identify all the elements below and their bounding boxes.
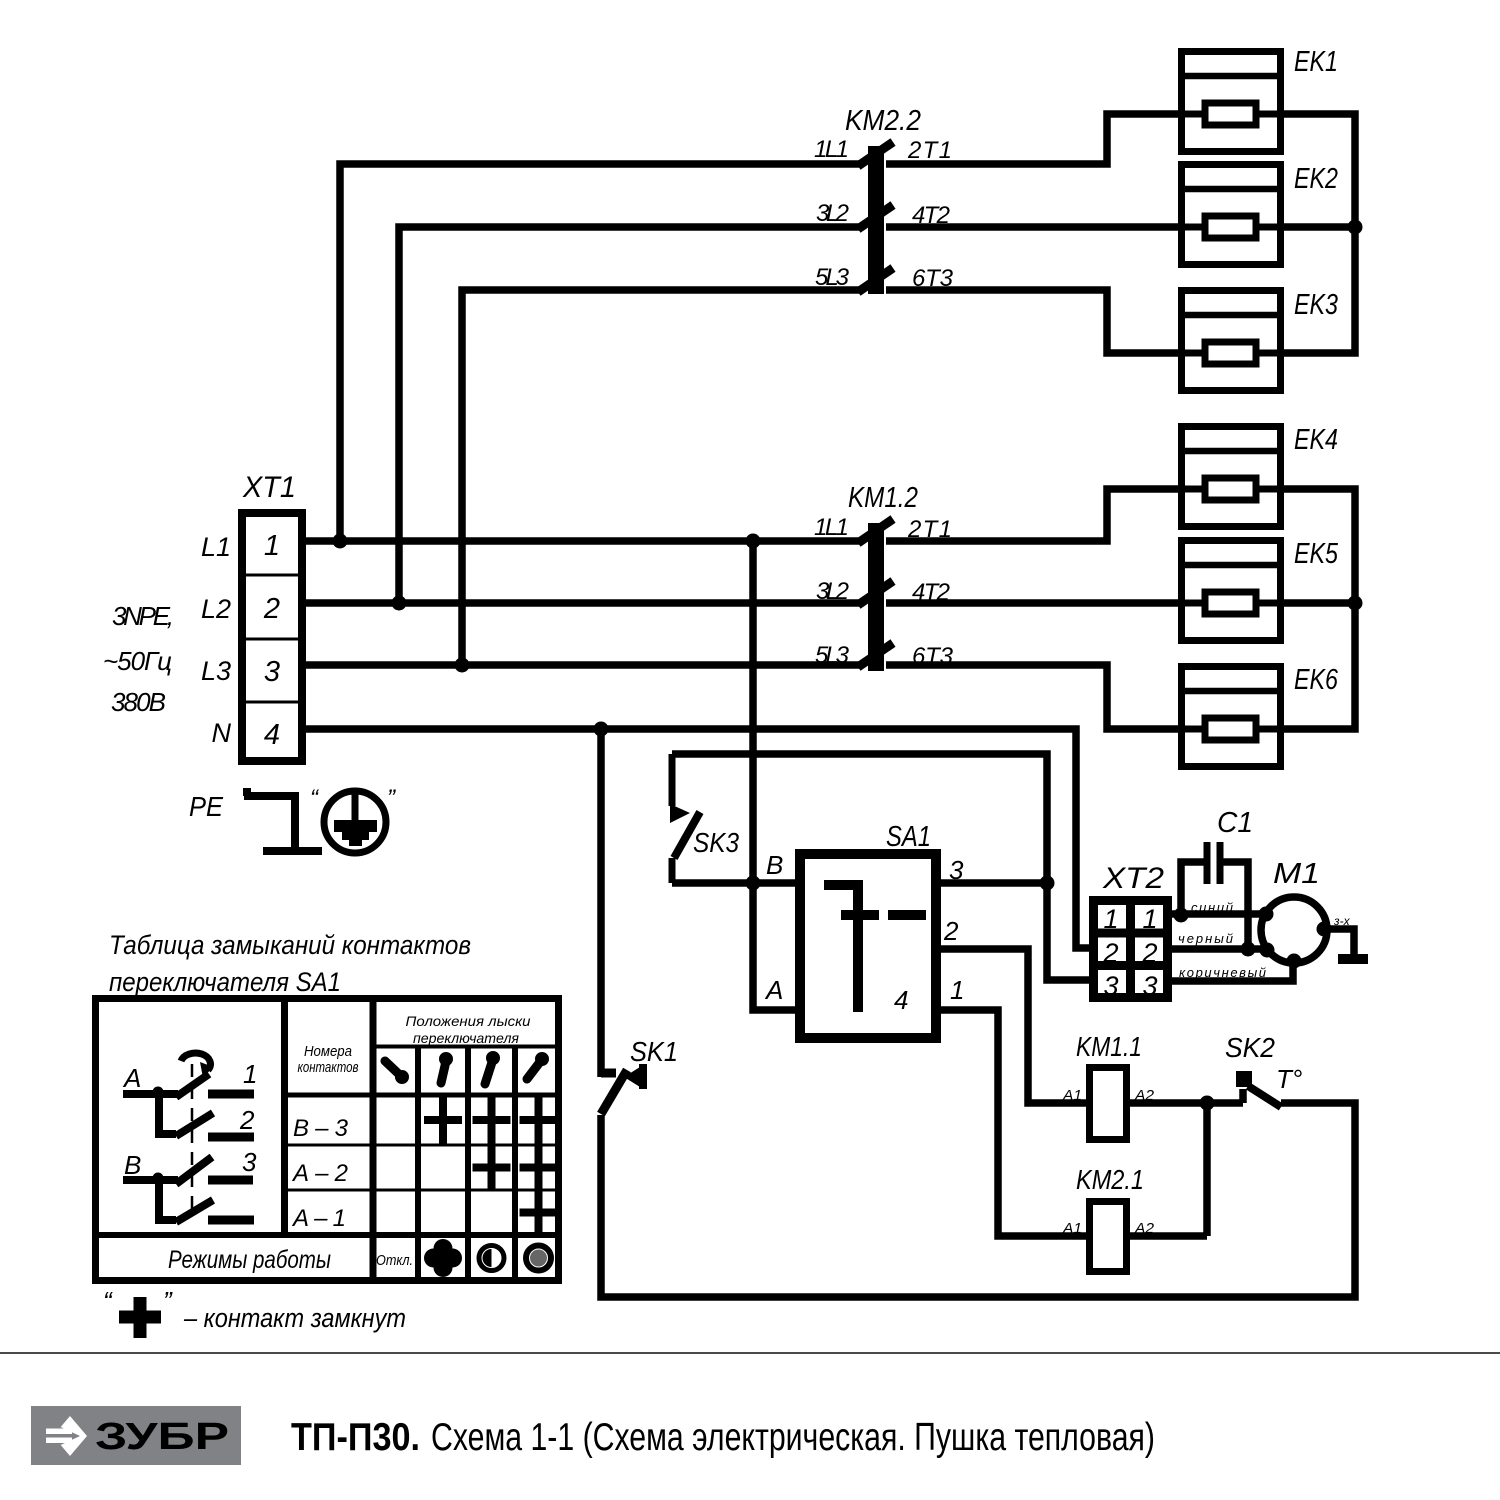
svg-text:KM1.2: KM1.2	[848, 482, 918, 514]
svg-text:А – 2: А – 2	[291, 1160, 348, 1187]
svg-text:переключателя SA1: переключателя SA1	[109, 967, 341, 997]
svg-text:черный: черный	[1178, 931, 1233, 946]
svg-text:A: A	[122, 1063, 141, 1093]
svg-text:2: 2	[943, 916, 959, 946]
svg-text:3L2: 3L2	[816, 200, 849, 227]
svg-text:L1: L1	[201, 532, 231, 562]
svg-text:2: 2	[263, 593, 280, 625]
svg-text:– контакт замкнут: – контакт замкнут	[183, 1303, 406, 1333]
svg-text:1L1: 1L1	[814, 136, 849, 163]
svg-text:“: “	[103, 1286, 113, 1316]
svg-text:“: “	[310, 785, 320, 812]
svg-text:2: 2	[1141, 938, 1157, 968]
svg-text:Режимы работы: Режимы работы	[168, 1246, 331, 1274]
svg-text:3: 3	[242, 1147, 257, 1177]
svg-text:Откл.: Откл.	[376, 1252, 413, 1269]
svg-text:6T3: 6T3	[912, 643, 954, 670]
svg-text:4T2: 4T2	[912, 202, 950, 229]
svg-text:T°: T°	[1276, 1064, 1302, 1094]
svg-text:1L1: 1L1	[814, 514, 849, 541]
svg-text:коричневый: коричневый	[1179, 965, 1266, 980]
svg-text:1: 1	[243, 1059, 257, 1089]
svg-text:синий: синий	[1191, 900, 1233, 915]
svg-text:EK5: EK5	[1294, 538, 1339, 570]
svg-text:5L3: 5L3	[815, 642, 850, 669]
svg-text:1: 1	[1142, 904, 1157, 934]
svg-text:N: N	[212, 718, 232, 748]
svg-text:В – 3: В – 3	[293, 1115, 349, 1142]
svg-text:2: 2	[239, 1105, 255, 1135]
svg-text:4: 4	[894, 985, 908, 1015]
svg-text:PE: PE	[189, 791, 223, 822]
svg-text:1: 1	[264, 530, 280, 562]
svg-text:”: ”	[387, 785, 396, 812]
svg-text:3: 3	[1142, 971, 1157, 1001]
svg-text:~50Гц: ~50Гц	[103, 646, 172, 676]
svg-text:SK2: SK2	[1225, 1032, 1275, 1063]
svg-text:M1: M1	[1273, 858, 1320, 890]
svg-text:3: 3	[264, 656, 280, 688]
svg-text:EK6: EK6	[1294, 664, 1339, 696]
svg-text:2: 2	[1102, 938, 1118, 968]
svg-text:4: 4	[264, 719, 280, 751]
svg-text:3L2: 3L2	[816, 578, 849, 605]
svg-text:ТП-П30.: ТП-П30.	[291, 1416, 420, 1459]
svg-text:L2: L2	[201, 594, 231, 624]
svg-text:з-х: з-х	[1333, 914, 1351, 928]
svg-text:Положения лыски: Положения лыски	[406, 1013, 531, 1029]
svg-text:SK1: SK1	[630, 1036, 678, 1067]
svg-text:контактов: контактов	[298, 1059, 359, 1076]
svg-text:EK4: EK4	[1294, 424, 1338, 456]
svg-text:380В: 380В	[111, 687, 166, 717]
svg-text:1: 1	[950, 975, 964, 1005]
svg-text:A2: A2	[1134, 1087, 1155, 1104]
svg-text:2T1: 2T1	[907, 137, 952, 164]
svg-text:EK1: EK1	[1294, 46, 1338, 78]
svg-text:A1: A1	[1062, 1087, 1082, 1104]
svg-text:Номера: Номера	[304, 1043, 352, 1060]
svg-text:”: ”	[163, 1286, 173, 1316]
svg-text:Таблица замыканий контактов: Таблица замыканий контактов	[109, 930, 471, 960]
svg-text:B: B	[124, 1150, 141, 1180]
svg-text:Схема 1-1 (Схема электрическая: Схема 1-1 (Схема электрическая. Пушка те…	[431, 1416, 1155, 1459]
svg-text:L3: L3	[201, 656, 231, 686]
svg-text:A: A	[764, 975, 783, 1005]
svg-text:переключателя: переключателя	[413, 1030, 520, 1046]
svg-text:А – 1: А – 1	[291, 1205, 346, 1232]
svg-text:1: 1	[1103, 904, 1118, 934]
svg-text:KM1.1: KM1.1	[1076, 1031, 1142, 1062]
svg-text:6T3: 6T3	[912, 265, 954, 292]
svg-text:KM2.2: KM2.2	[845, 105, 921, 137]
svg-text:XT1: XT1	[242, 471, 296, 504]
svg-text:EK3: EK3	[1294, 289, 1338, 321]
svg-text:XT2: XT2	[1102, 862, 1164, 895]
svg-text:SA1: SA1	[886, 821, 931, 853]
svg-text:5L3: 5L3	[815, 264, 850, 291]
svg-text:2T1: 2T1	[907, 516, 952, 543]
svg-text:SK3: SK3	[693, 827, 739, 858]
svg-text:3: 3	[1103, 971, 1118, 1001]
svg-text:A1: A1	[1062, 1220, 1082, 1237]
svg-text:4T2: 4T2	[912, 579, 950, 606]
svg-text:A2: A2	[1134, 1220, 1155, 1237]
svg-text:B: B	[766, 850, 783, 880]
svg-text:C1: C1	[1217, 807, 1253, 839]
svg-text:ЗУБР: ЗУБР	[95, 1416, 229, 1458]
svg-text:EK2: EK2	[1294, 163, 1338, 195]
svg-text:KM2.1: KM2.1	[1076, 1164, 1144, 1195]
svg-text:3NPE,: 3NPE,	[112, 601, 174, 631]
svg-text:3: 3	[949, 855, 964, 885]
